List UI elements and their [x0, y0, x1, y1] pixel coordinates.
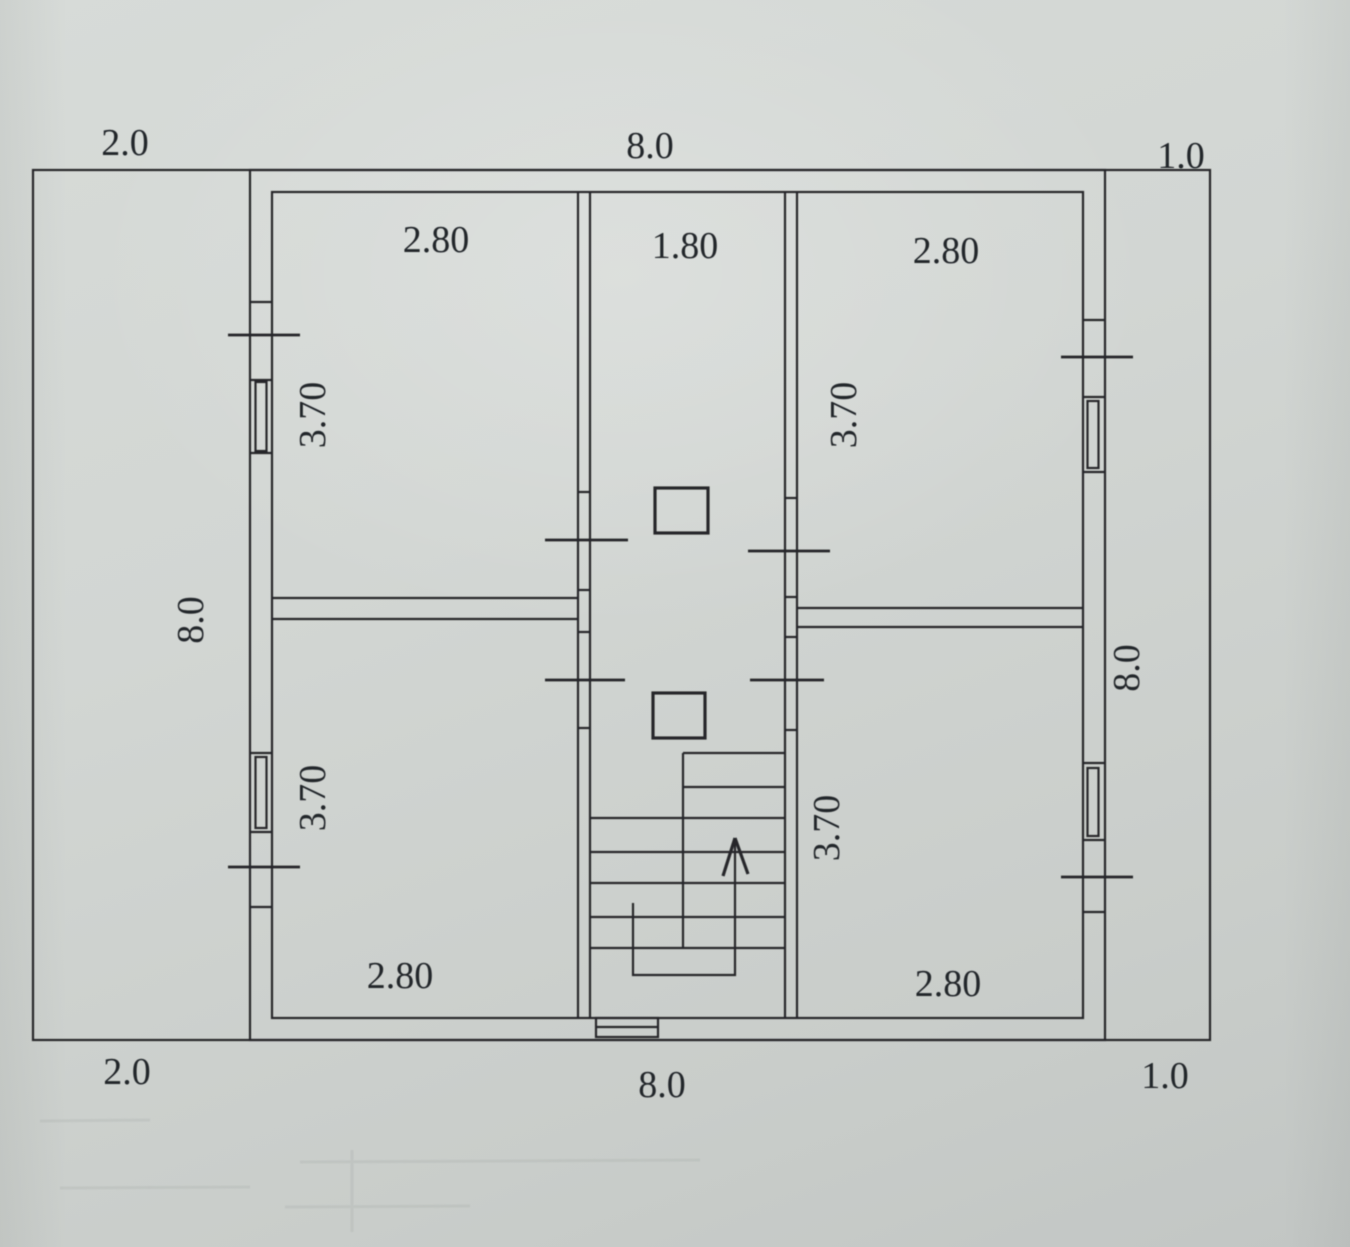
dim-top-center-label: 8.0 — [626, 125, 674, 167]
dim-right-side-label: 8.0 — [1106, 644, 1148, 692]
room-divider-wall-right — [797, 608, 1083, 627]
room-upper-right-depth-label: 3.70 — [823, 382, 865, 449]
dimension-labels: 2.0 8.0 1.0 2.0 8.0 1.0 8.0 8.0 2.80 1.8… — [101, 122, 1205, 1106]
chimney-upper — [655, 488, 708, 533]
interior-partition-right — [748, 192, 830, 1018]
floor-plan-drawing: 2.0 8.0 1.0 2.0 8.0 1.0 8.0 8.0 2.80 1.8… — [0, 0, 1350, 1247]
room-lower-left-width-label: 2.80 — [367, 955, 434, 997]
room-lower-left-depth-label: 3.70 — [292, 765, 334, 832]
window-left-lower — [228, 753, 300, 907]
room-lower-right-width-label: 2.80 — [915, 963, 982, 1005]
paper-bleed-through-marks — [40, 1120, 700, 1232]
dim-top-left-label: 2.0 — [101, 122, 149, 164]
dim-top-right-label: 1.0 — [1157, 135, 1205, 177]
chimney-lower — [653, 693, 705, 738]
scanned-floor-plan-sheet: 2.0 8.0 1.0 2.0 8.0 1.0 8.0 8.0 2.80 1.8… — [0, 0, 1350, 1247]
dim-left-side-label: 8.0 — [170, 596, 212, 644]
dim-bottom-left-label: 2.0 — [103, 1051, 151, 1093]
building-inner-wall — [272, 192, 1083, 1018]
building-outer-wall — [250, 170, 1105, 1040]
window-right-upper — [1061, 320, 1133, 472]
room-upper-left-width-label: 2.80 — [403, 219, 470, 261]
entrance-threshold — [596, 1018, 658, 1037]
dim-bottom-center-label: 8.0 — [638, 1064, 686, 1106]
room-lower-right-depth-label: 3.70 — [806, 795, 848, 862]
room-divider-wall-left — [272, 598, 578, 619]
room-upper-left-depth-label: 3.70 — [292, 382, 334, 449]
dim-bottom-right-label: 1.0 — [1141, 1055, 1189, 1097]
window-right-lower — [1061, 763, 1133, 912]
staircase — [590, 753, 785, 975]
hall-width-label: 1.80 — [652, 225, 719, 267]
room-upper-right-width-label: 2.80 — [913, 230, 980, 272]
window-left-upper — [228, 302, 300, 453]
interior-partition-left — [545, 192, 628, 1018]
